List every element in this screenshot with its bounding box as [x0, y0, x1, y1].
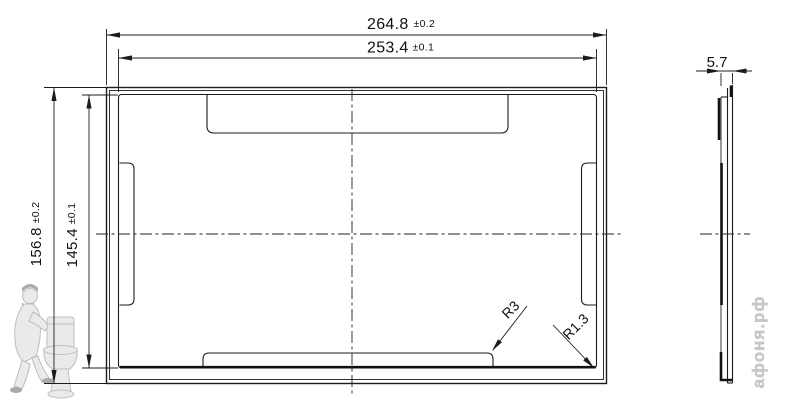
r1-3-label: R1.3 [559, 310, 591, 342]
dimension-thickness: 5.7 [696, 54, 752, 86]
drawing-svg: 264.8±0.2 253.4±0.1 156.8±0.2 145.4±0.1 … [0, 0, 785, 407]
plumber-torso [15, 304, 41, 362]
opening-rect [119, 95, 597, 369]
outer-height-text: 156.8±0.2 [28, 202, 45, 267]
toilet-tank [47, 317, 74, 349]
dimension-outer-width: 264.8±0.2 [107, 16, 607, 85]
radius-callout-r1-3: R1.3 [553, 310, 596, 370]
thickness-text: 5.7 [707, 54, 728, 71]
watermark-site-text: афоня.рф [749, 296, 768, 389]
side-view [700, 85, 750, 383]
plumber-leg-left [14, 360, 30, 389]
plumber-head [23, 289, 38, 304]
front-view [96, 88, 622, 397]
inner-height-text: 145.4±0.1 [64, 203, 81, 268]
inner-width-text: 253.4±0.1 [367, 40, 434, 57]
plumber-shoe-left [10, 387, 22, 393]
outer-width-text: 264.8±0.2 [367, 16, 435, 33]
watermark-plumber-figure [10, 284, 78, 398]
bottom-tab [203, 353, 493, 367]
front-centerlines [96, 89, 622, 396]
outer-frame-rect [107, 88, 607, 384]
r3-label: R3 [498, 297, 522, 321]
top-tab [207, 95, 508, 133]
dimension-inner-width: 253.4±0.1 [119, 40, 597, 93]
radius-callout-r3: R3 [490, 297, 527, 352]
side-bottom-hook [721, 352, 732, 380]
technical-drawing-canvas: 264.8±0.2 253.4±0.1 156.8±0.2 145.4±0.1 … [0, 0, 785, 407]
frame-lip-rect [110, 91, 604, 380]
